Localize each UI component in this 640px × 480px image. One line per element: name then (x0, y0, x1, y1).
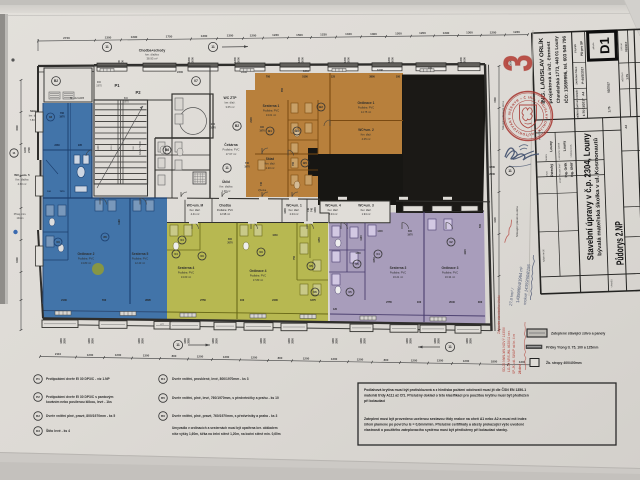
svg-text:1300: 1300 (105, 35, 112, 39)
svg-text:17.80 m²: 17.80 m² (253, 278, 263, 282)
svg-text:Ordinace 1: Ordinace 1 (357, 101, 374, 105)
svg-text:2755: 2755 (386, 300, 392, 304)
svg-text:04: 04 (180, 238, 184, 242)
svg-text:06: 06 (313, 290, 317, 294)
svg-text:1:75: 1:75 (582, 110, 586, 117)
svg-text:B4: B4 (161, 377, 165, 381)
svg-text:03/2017: 03/2017 (624, 41, 628, 52)
svg-text:1200: 1200 (490, 30, 497, 34)
svg-text:17.67 m²: 17.67 m² (226, 152, 237, 156)
svg-text:Ing. Orlík: Ing. Orlík (564, 162, 569, 177)
svg-text:1200: 1200 (111, 145, 113, 151)
svg-text:Sesterna 4: Sesterna 4 (178, 266, 195, 270)
svg-text:05: 05 (309, 264, 313, 268)
svg-text:120: 120 (333, 308, 338, 311)
svg-text:100: 100 (396, 76, 401, 79)
svg-text:2300: 2300 (177, 70, 183, 74)
svg-text:13.80 m²: 13.80 m² (81, 261, 91, 265)
svg-text:800: 800 (172, 354, 177, 358)
svg-text:Sesterna 5: Sesterna 5 (132, 252, 149, 256)
svg-text:Ker. dlaž.: Ker. dlaž. (289, 208, 300, 212)
svg-text:03/2017: 03/2017 (581, 98, 585, 110)
svg-text:OKRES: OKRES (546, 153, 548, 161)
svg-text:1230: 1230 (513, 30, 520, 34)
svg-text:13.60 m²: 13.60 m² (181, 275, 191, 279)
svg-text:1290: 1290 (131, 35, 138, 39)
svg-text:PD pro SP: PD pro SP (579, 41, 584, 56)
svg-text:MĚŘÍTKO: MĚŘÍTKO (621, 72, 624, 82)
svg-text:750: 750 (293, 255, 296, 260)
svg-text:B2: B2 (54, 79, 58, 83)
svg-text:1200: 1200 (489, 165, 495, 169)
svg-text:VYPRACOVAL: VYPRACOVAL (569, 143, 572, 157)
svg-text:Umyvadla v ordinacích a sester: Umyvadla v ordinacích a sesternách musí … (172, 426, 278, 430)
svg-text:300: 300 (478, 300, 483, 304)
svg-text:materiál třídy A111 až Cf1. Př: materiál třídy A111 až Cf1. Příslušný do… (364, 394, 529, 398)
svg-text:03: 03 (200, 254, 204, 258)
svg-text:Zastavím stavebního úřadu: Zastavím stavebního úřadu (497, 295, 501, 334)
svg-text:2400: 2400 (272, 298, 278, 302)
svg-text:MĚŘÍTKO: MĚŘÍTKO (576, 108, 579, 118)
svg-text:Stávající plastová okna: Stávající plastová okna (501, 101, 505, 130)
svg-text:1300: 1300 (370, 32, 377, 36)
svg-text:2.04 m²: 2.04 m² (290, 212, 299, 216)
svg-text:Stávající plastová okna: Stávající plastová okna (515, 206, 519, 237)
svg-text:2110: 2110 (55, 352, 62, 356)
svg-text:1300: 1300 (223, 355, 230, 359)
svg-text:Podlahová krytina musí být pro: Podlahová krytina musí být protiskluzová… (364, 387, 526, 392)
svg-text:Přisaj. mín.: Přisaj. mín. (14, 213, 27, 216)
svg-text:05: 05 (355, 262, 359, 266)
svg-text:Zateplení musí být provedeno u: Zateplení musí být provedeno ucelenou se… (364, 417, 527, 421)
svg-text:740: 740 (307, 207, 310, 212)
svg-text:BL.1421x985: BL.1421x985 (70, 97, 85, 100)
svg-text:1200: 1200 (357, 357, 364, 361)
svg-text:18x 177/300: 18x 177/300 (139, 141, 142, 155)
svg-text:1500: 1500 (296, 33, 303, 37)
svg-text:700: 700 (266, 76, 271, 79)
svg-text:WC+um. 1: WC+um. 1 (286, 204, 302, 208)
svg-text:1040: 1040 (345, 32, 352, 36)
svg-text:740: 740 (311, 207, 314, 212)
svg-text:1:75: 1:75 (625, 73, 629, 79)
svg-text:Protipožární dveře EI 30 DP3/C: Protipožární dveře EI 30 DP3/C s pantový… (46, 395, 113, 399)
svg-text:B6: B6 (295, 129, 299, 133)
svg-text:1200: 1200 (395, 32, 402, 36)
svg-text:B5: B5 (161, 396, 165, 400)
svg-text:2000: 2000 (191, 57, 195, 63)
svg-text:1970: 1970 (96, 85, 102, 88)
svg-text:Ker. dlaž.: Ker. dlaž. (361, 208, 372, 212)
svg-text:D1: D1 (597, 37, 613, 54)
svg-text:Příčky Ytong tl. 75, 100 a 125: Příčky Ytong tl. 75, 100 a 125mm (546, 346, 598, 350)
svg-text:šíření plamene po povrchu Is: šíření plamene po povrchu Is = 0,0mm/min… (364, 423, 524, 427)
svg-text:1330: 1330 (355, 252, 361, 255)
svg-text:2000: 2000 (409, 338, 412, 344)
svg-text:Podlaha: PVC: Podlaha: PVC (178, 271, 194, 275)
svg-text:800: 800 (278, 356, 283, 360)
svg-text:Podlaha: PVC: Podlaha: PVC (223, 148, 240, 152)
svg-text:1300: 1300 (437, 359, 444, 363)
svg-text:3.04 m²: 3.04 m² (329, 212, 338, 216)
svg-text:1300: 1300 (331, 357, 338, 361)
svg-text:Dveře vnitřní, plné, levé, 760: Dveře vnitřní, plné, levé, 760/1970mm, s… (172, 396, 279, 400)
svg-text:WC+um. 3: WC+um. 3 (358, 204, 374, 208)
svg-text:Protipožární dveře EI 30 DP3/C: Protipožární dveře EI 30 DP3/C - víz 1.N… (46, 377, 111, 381)
svg-text:2750: 2750 (200, 298, 206, 302)
svg-text:1300: 1300 (187, 57, 191, 63)
svg-text:5100: 5100 (302, 76, 308, 79)
svg-text:NÁZEV AKCE: NÁZEV AKCE (542, 249, 545, 262)
svg-text:LG-15 VRS-WL 4628/11 ver.: LG-15 VRS-WL 4628/11 ver. (507, 330, 511, 372)
svg-text:04: 04 (174, 252, 178, 256)
svg-text:KRAJ: KRAJ (545, 171, 548, 176)
svg-text:1800: 1800 (491, 360, 498, 364)
svg-text:800: 800 (384, 358, 389, 362)
svg-text:100: 100 (240, 298, 245, 302)
svg-text:1200: 1200 (419, 31, 426, 35)
svg-text:07: 07 (194, 79, 198, 83)
svg-text:2040: 2040 (449, 300, 455, 304)
svg-text:1190: 1190 (118, 219, 121, 225)
svg-text:Podlaha: PVC: Podlaha: PVC (78, 257, 94, 261)
svg-text:1200: 1200 (463, 359, 470, 363)
svg-text:1970: 1970 (244, 165, 250, 168)
svg-text:1970: 1970 (210, 126, 216, 129)
svg-text:11: 11 (12, 151, 16, 155)
svg-text:B2: B2 (319, 105, 323, 109)
svg-text:2000: 2000 (301, 57, 305, 63)
svg-text:DATUM: DATUM (576, 100, 579, 108)
svg-text:2895: 2895 (145, 298, 151, 302)
svg-text:2100: 2100 (250, 117, 253, 123)
svg-text:2130: 2130 (61, 298, 67, 302)
svg-text:Podlaha: PVC: Podlaha: PVC (442, 271, 458, 275)
svg-text:WC+um. 2: WC+um. 2 (358, 128, 374, 132)
svg-text:B6: B6 (165, 148, 169, 152)
svg-text:13.01 m²: 13.01 m² (266, 113, 276, 117)
svg-text:Ing. Uhlíř: Ing. Uhlíř (570, 162, 575, 178)
svg-text:4.60 m²: 4.60 m² (18, 182, 27, 186)
svg-text:Louny: Louny (549, 141, 553, 152)
svg-text:B1: B1 (268, 129, 272, 133)
svg-text:2070: 2070 (227, 241, 233, 244)
svg-text:WC+um. 4: WC+um. 4 (325, 204, 341, 208)
svg-text:2000: 2000 (363, 338, 366, 344)
svg-text:1230: 1230 (320, 33, 327, 37)
svg-text:1300: 1300 (227, 34, 234, 38)
svg-text:6400: 6400 (16, 257, 19, 263)
svg-text:1300: 1300 (233, 57, 237, 63)
svg-text:WC+um. M: WC+um. M (187, 204, 204, 208)
svg-text:1300: 1300 (459, 57, 463, 63)
svg-text:ker. dlaž.: ker. dlaž. (225, 101, 236, 105)
svg-text:700: 700 (292, 161, 295, 166)
svg-text:Úklid: Úklid (222, 179, 230, 184)
svg-text:1290: 1290 (443, 31, 450, 35)
svg-text:1300: 1300 (297, 57, 301, 63)
svg-text:11: 11 (448, 345, 452, 349)
svg-text:11: 11 (105, 45, 109, 49)
svg-text:Dveře vnitřní, plné, pravé, 76: Dveře vnitřní, plné, pravé, 760/1970mm, … (172, 414, 278, 418)
svg-text:Štíto levé - ks 4: Štíto levé - ks 4 (46, 428, 70, 433)
svg-text:Ker. dlaž.: Ker. dlaž. (265, 162, 276, 166)
svg-text:1400: 1400 (377, 230, 383, 233)
svg-text:A4: A4 (624, 125, 628, 129)
svg-text:1250: 1250 (318, 237, 321, 243)
svg-text:125: 125 (331, 76, 336, 79)
svg-text:12.43 m²: 12.43 m² (135, 261, 145, 265)
svg-text:02: 02 (449, 240, 453, 244)
svg-text:Podlaha: PVC: Podlaha: PVC (263, 109, 279, 113)
svg-text:Ker. dlažba: Ker. dlažba (16, 178, 30, 182)
svg-text:Chodba: Chodba (219, 204, 231, 208)
svg-text:1970: 1970 (123, 101, 129, 104)
svg-text:niše výšky 1,60m, šířka na čel: niše výšky 1,60m, šířka na čelní stěně 1… (172, 432, 281, 436)
svg-text:2000: 2000 (463, 57, 467, 63)
svg-text:1230: 1230 (272, 33, 279, 37)
svg-text:příloha: příloha (593, 42, 595, 50)
svg-text:04: 04 (376, 252, 380, 256)
svg-text:3800: 3800 (369, 76, 375, 79)
svg-text:100: 100 (417, 300, 422, 304)
svg-text:2000: 2000 (141, 338, 144, 344)
svg-text:12.98 m²: 12.98 m² (220, 212, 230, 216)
svg-text:B2: B2 (235, 124, 239, 128)
svg-text:Podlaha: PVC: Podlaha: PVC (250, 274, 266, 278)
svg-text:7570: 7570 (60, 191, 66, 193)
svg-text:1200: 1200 (250, 33, 257, 37)
svg-text:VÝKRES: VÝKRES (610, 279, 613, 288)
svg-text:2260: 2260 (54, 144, 60, 147)
svg-text:790: 790 (102, 298, 107, 302)
svg-text:1200: 1200 (411, 358, 418, 362)
svg-text:A4: A4 (581, 92, 585, 96)
svg-text:2000: 2000 (215, 338, 218, 344)
svg-text:3000: 3000 (16, 125, 19, 131)
svg-text:2000: 2000 (347, 57, 351, 63)
svg-text:1.94 m²: 1.94 m² (362, 212, 371, 216)
svg-text:Ker. dlažba: Ker. dlažba (220, 185, 234, 189)
svg-text:28 dně: 28 dně (518, 364, 522, 374)
svg-text:Dveře vnitřní, prosklené, levé: Dveře vnitřní, prosklené, levé, 800/1970… (172, 377, 249, 381)
svg-text:2000: 2000 (291, 338, 294, 344)
svg-text:2000: 2000 (263, 338, 266, 344)
svg-text:1660: 1660 (272, 234, 278, 237)
svg-text:1200: 1200 (303, 356, 310, 360)
svg-text:Dveře vnitřní plné, pravé, 800: Dveře vnitřní plné, pravé, 800/1970mm - … (46, 414, 115, 418)
svg-text:Žb. stropy 400/400mm: Žb. stropy 400/400mm (546, 360, 582, 365)
svg-text:B2: B2 (36, 414, 40, 418)
svg-text:1100: 1100 (360, 235, 363, 241)
svg-text:11: 11 (211, 45, 215, 49)
svg-text:11: 11 (508, 169, 512, 173)
svg-text:Louny: Louny (562, 141, 566, 152)
svg-text:Půdorys 2.NP: Půdorys 2.NP (613, 221, 627, 265)
svg-text:11: 11 (176, 343, 180, 347)
svg-text:850: 850 (281, 87, 284, 92)
svg-text:Podlaha: PVC: Podlaha: PVC (390, 271, 406, 275)
svg-text:2000: 2000 (187, 338, 190, 344)
svg-text:11: 11 (225, 166, 229, 170)
svg-text:2000: 2000 (437, 338, 440, 344)
svg-text:3: 3 (495, 55, 540, 72)
svg-text:SD-25 NWL-WL NOVÝ 14359/: SD-25 NWL-WL NOVÝ 14359/ (502, 327, 506, 372)
svg-text:1300: 1300 (387, 57, 391, 63)
svg-text:1750: 1750 (166, 35, 173, 39)
svg-text:P1: P1 (114, 83, 120, 88)
svg-text:1970: 1970 (59, 115, 65, 118)
svg-text:DATUM: DATUM (620, 43, 623, 50)
svg-text:740: 740 (260, 181, 263, 186)
svg-text:38.93 m²: 38.93 m² (146, 57, 157, 61)
svg-text:Ker. dlaž.: Ker. dlaž. (328, 208, 339, 212)
svg-text:4.05 m²: 4.05 m² (362, 137, 371, 141)
svg-text:2790: 2790 (27, 147, 31, 153)
svg-text:10mm: 10mm (17, 217, 24, 220)
svg-text:88: 88 (103, 235, 107, 239)
svg-text:B5: B5 (303, 161, 307, 165)
svg-text:935: 935 (78, 144, 83, 147)
svg-text:Ker. dlaž.: Ker. dlaž. (190, 208, 201, 212)
svg-text:Zateplené stávající zdivo a pa: Zateplené stávající zdivo a panely (551, 332, 605, 336)
svg-text:Ordinace 4: Ordinace 4 (249, 269, 266, 273)
svg-text:1200: 1200 (251, 356, 258, 360)
svg-text:SP-JK ukl. SWAP od hr. 4 m: SP-JK ukl. SWAP od hr. 4 m (512, 334, 516, 374)
svg-text:kováním nebo posílenou klikou,: kováním nebo posílenou klikou, levé - 1k… (46, 400, 112, 404)
svg-text:4420: 4420 (494, 217, 497, 223)
svg-text:Sesterna 1: Sesterna 1 (263, 104, 280, 108)
svg-text:Podlaha: PVC: Podlaha: PVC (217, 208, 233, 212)
svg-text:1800: 1800 (303, 69, 309, 73)
svg-text:STUPEŇ: STUPEŇ (574, 44, 577, 53)
svg-text:1300: 1300 (466, 31, 473, 35)
svg-text:1000: 1000 (377, 68, 383, 72)
svg-text:4.41 m²: 4.41 m² (191, 212, 200, 216)
svg-text:500: 500 (479, 223, 482, 228)
svg-text:1200: 1200 (314, 207, 317, 213)
svg-text:Ker. dlaž.: Ker. dlaž. (361, 133, 372, 137)
svg-text:2000: 2000 (391, 57, 395, 63)
svg-text:1970: 1970 (407, 233, 413, 236)
svg-text:1200: 1200 (197, 355, 204, 359)
svg-text:P-44/1/2017: P-44/1/2017 (580, 67, 585, 84)
svg-text:16.21 m²: 16.21 m² (393, 275, 403, 279)
svg-text:1970: 1970 (259, 129, 265, 132)
svg-text:P2: P2 (135, 90, 141, 95)
svg-text:KATASTR. ÚZEMÍ: KATASTR. ÚZEMÍ (557, 143, 561, 160)
svg-text:03/2017: 03/2017 (606, 82, 610, 93)
svg-text:Sesterna 3: Sesterna 3 (390, 266, 407, 270)
svg-text:Podlaha: PVC: Podlaha: PVC (358, 106, 374, 110)
svg-text:2000: 2000 (63, 338, 66, 344)
svg-text:1500: 1500 (494, 97, 497, 103)
svg-text:Ústecký: Ústecký (549, 164, 554, 178)
svg-text:Čekárna: Čekárna (224, 142, 237, 147)
svg-text:1300: 1300 (143, 354, 150, 358)
svg-text:D3: D3 (36, 429, 40, 433)
svg-text:1200: 1200 (115, 353, 122, 357)
svg-text:Výlevka: Výlevka (258, 189, 267, 192)
svg-text:Ordinace 3: Ordinace 3 (441, 266, 458, 270)
svg-text:1:75: 1:75 (607, 106, 611, 112)
svg-text:1200: 1200 (87, 353, 94, 357)
svg-text:3.65 m²: 3.65 m² (225, 105, 234, 109)
svg-text:1275: 1275 (310, 298, 316, 302)
svg-text:2740: 2740 (63, 36, 70, 40)
svg-text:03: 03 (56, 240, 60, 244)
svg-text:03: 03 (49, 115, 53, 119)
svg-text:1300: 1300 (343, 57, 347, 63)
svg-text:WC+ um. 5: WC+ um. 5 (14, 173, 30, 177)
svg-text:P2: P2 (36, 395, 40, 399)
svg-text:1100: 1100 (97, 145, 100, 151)
svg-text:Ordinace 2: Ordinace 2 (77, 252, 94, 256)
svg-text:P1: P1 (36, 377, 40, 381)
svg-text:16.34 m²: 16.34 m² (445, 275, 455, 279)
svg-text:4420: 4420 (464, 249, 467, 255)
svg-text:03: 03 (259, 250, 263, 254)
svg-text:2.20 m²: 2.20 m² (266, 166, 275, 170)
svg-text:05: 05 (348, 290, 352, 294)
svg-text:1200: 1200 (284, 208, 287, 214)
svg-text:2000: 2000 (91, 338, 94, 344)
svg-text:14.75 m²: 14.75 m² (361, 110, 371, 114)
svg-text:WC ZTP: WC ZTP (224, 96, 238, 100)
svg-text:FORMÁT: FORMÁT (576, 89, 579, 99)
svg-text:2000: 2000 (335, 338, 338, 344)
svg-text:1200: 1200 (23, 147, 27, 153)
svg-text:B6: B6 (161, 414, 165, 418)
svg-text:při kolaudaci: při kolaudaci (364, 399, 385, 403)
svg-text:1050: 1050 (373, 257, 376, 263)
svg-text:100: 100 (428, 67, 433, 70)
svg-text:2000: 2000 (237, 57, 241, 63)
svg-text:1300: 1300 (201, 34, 208, 38)
svg-text:2000: 2000 (489, 172, 495, 176)
svg-text:Podlaha: PVC: Podlaha: PVC (132, 257, 148, 261)
svg-text:Sklad: Sklad (266, 157, 275, 161)
svg-text:2000: 2000 (469, 338, 472, 344)
svg-text:vlastnosti o použitého zateplo: vlastnosti o použitého zateplovacího sys… (364, 428, 508, 432)
